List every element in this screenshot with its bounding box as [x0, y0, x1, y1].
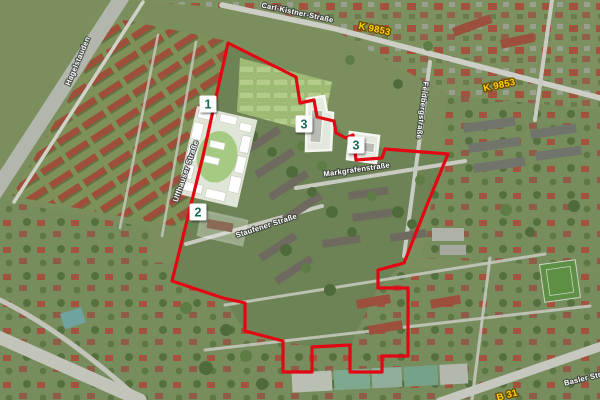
- site-marker-number: 3: [301, 118, 308, 132]
- sports-field: [540, 260, 581, 303]
- map-canvas: Carl-Kistner-StraßeHagelstaudenUffhauser…: [0, 0, 600, 400]
- site-marker-number: 1: [205, 98, 212, 112]
- site-marker-number: 3: [353, 139, 360, 153]
- site-marker: 1: [200, 96, 217, 113]
- school-building-2: [440, 245, 466, 255]
- site-marker: 2: [190, 204, 207, 221]
- site-marker: 3: [348, 137, 365, 154]
- aerial-map: Carl-Kistner-StraßeHagelstaudenUffhauser…: [0, 0, 600, 400]
- school-building-1: [432, 228, 464, 241]
- site-marker-number: 2: [195, 206, 202, 220]
- site-marker: 3: [296, 116, 313, 133]
